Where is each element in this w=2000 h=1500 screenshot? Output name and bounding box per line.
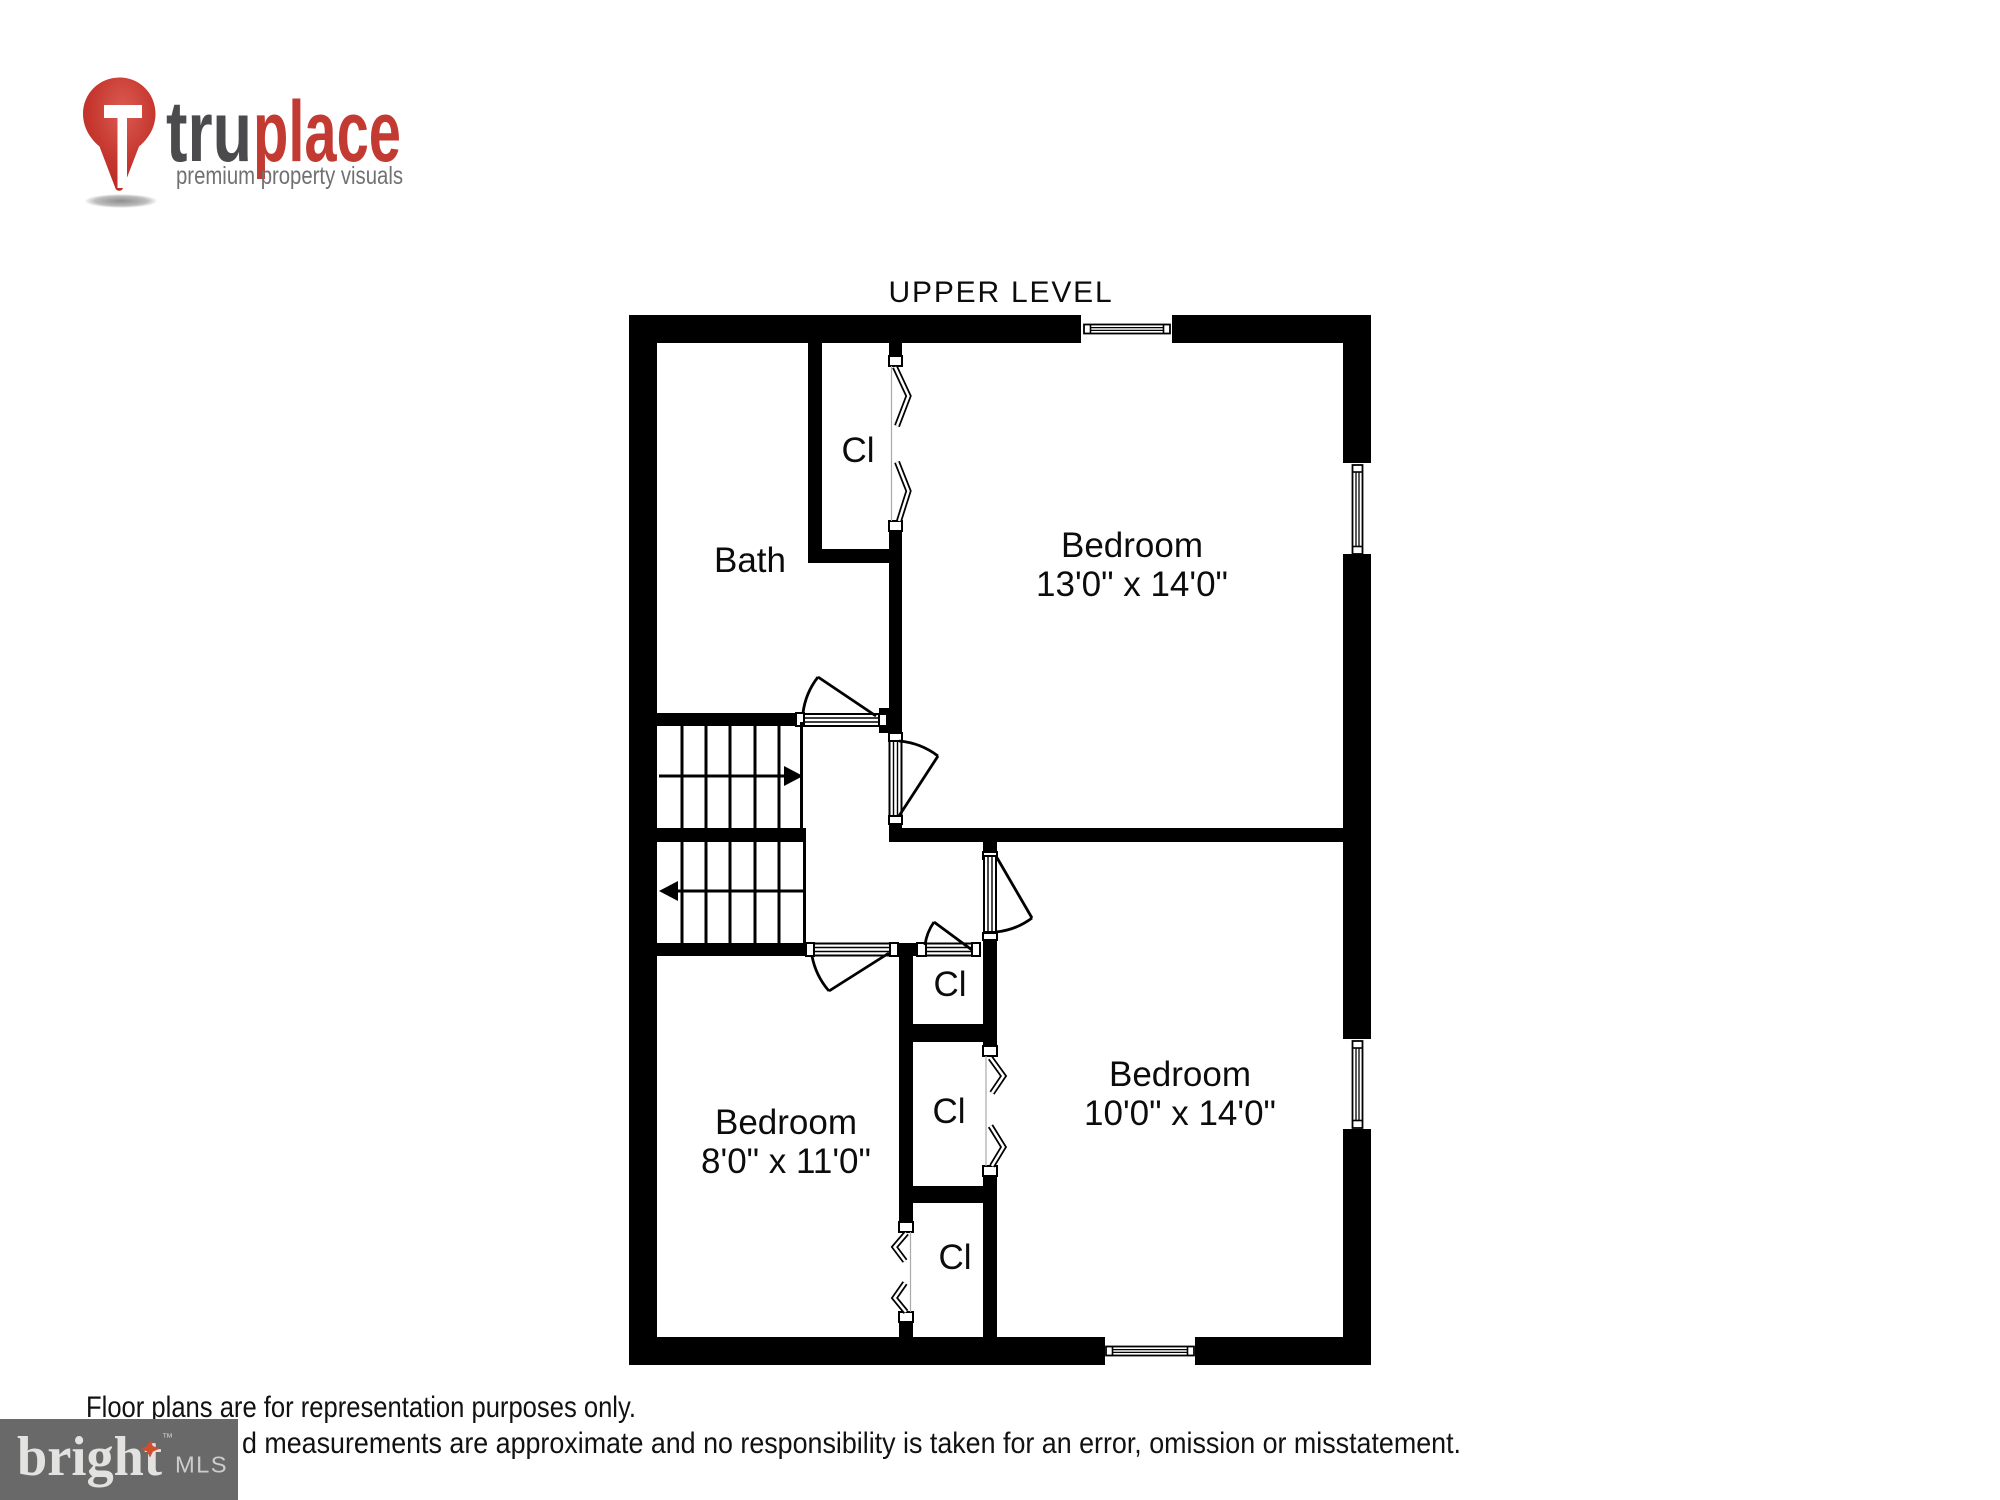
svg-text:premium property visuals: premium property visuals [176, 162, 403, 190]
svg-text:Cl: Cl [932, 1092, 965, 1131]
svg-text:™: ™ [162, 1432, 173, 1444]
svg-text:MLS: MLS [175, 1452, 228, 1478]
svg-text:8'0" x 11'0": 8'0" x 11'0" [701, 1142, 871, 1181]
svg-text:Bedroom: Bedroom [715, 1103, 857, 1142]
svg-text:13'0" x 14'0": 13'0" x 14'0" [1036, 565, 1228, 604]
svg-text:Cl: Cl [933, 965, 966, 1004]
svg-text:10'0" x 14'0": 10'0" x 14'0" [1084, 1094, 1276, 1133]
svg-text:bright: bright [17, 1426, 162, 1488]
svg-text:Bedroom: Bedroom [1061, 526, 1203, 565]
svg-text:Cl: Cl [841, 431, 874, 470]
svg-text:Bedroom: Bedroom [1109, 1055, 1251, 1094]
svg-text:Cl: Cl [938, 1238, 971, 1277]
svg-text:d measurements are approximate: d measurements are approximate and no re… [242, 1427, 1461, 1460]
svg-text:Bath: Bath [714, 541, 786, 580]
svg-text:UPPER LEVEL: UPPER LEVEL [889, 276, 1114, 309]
